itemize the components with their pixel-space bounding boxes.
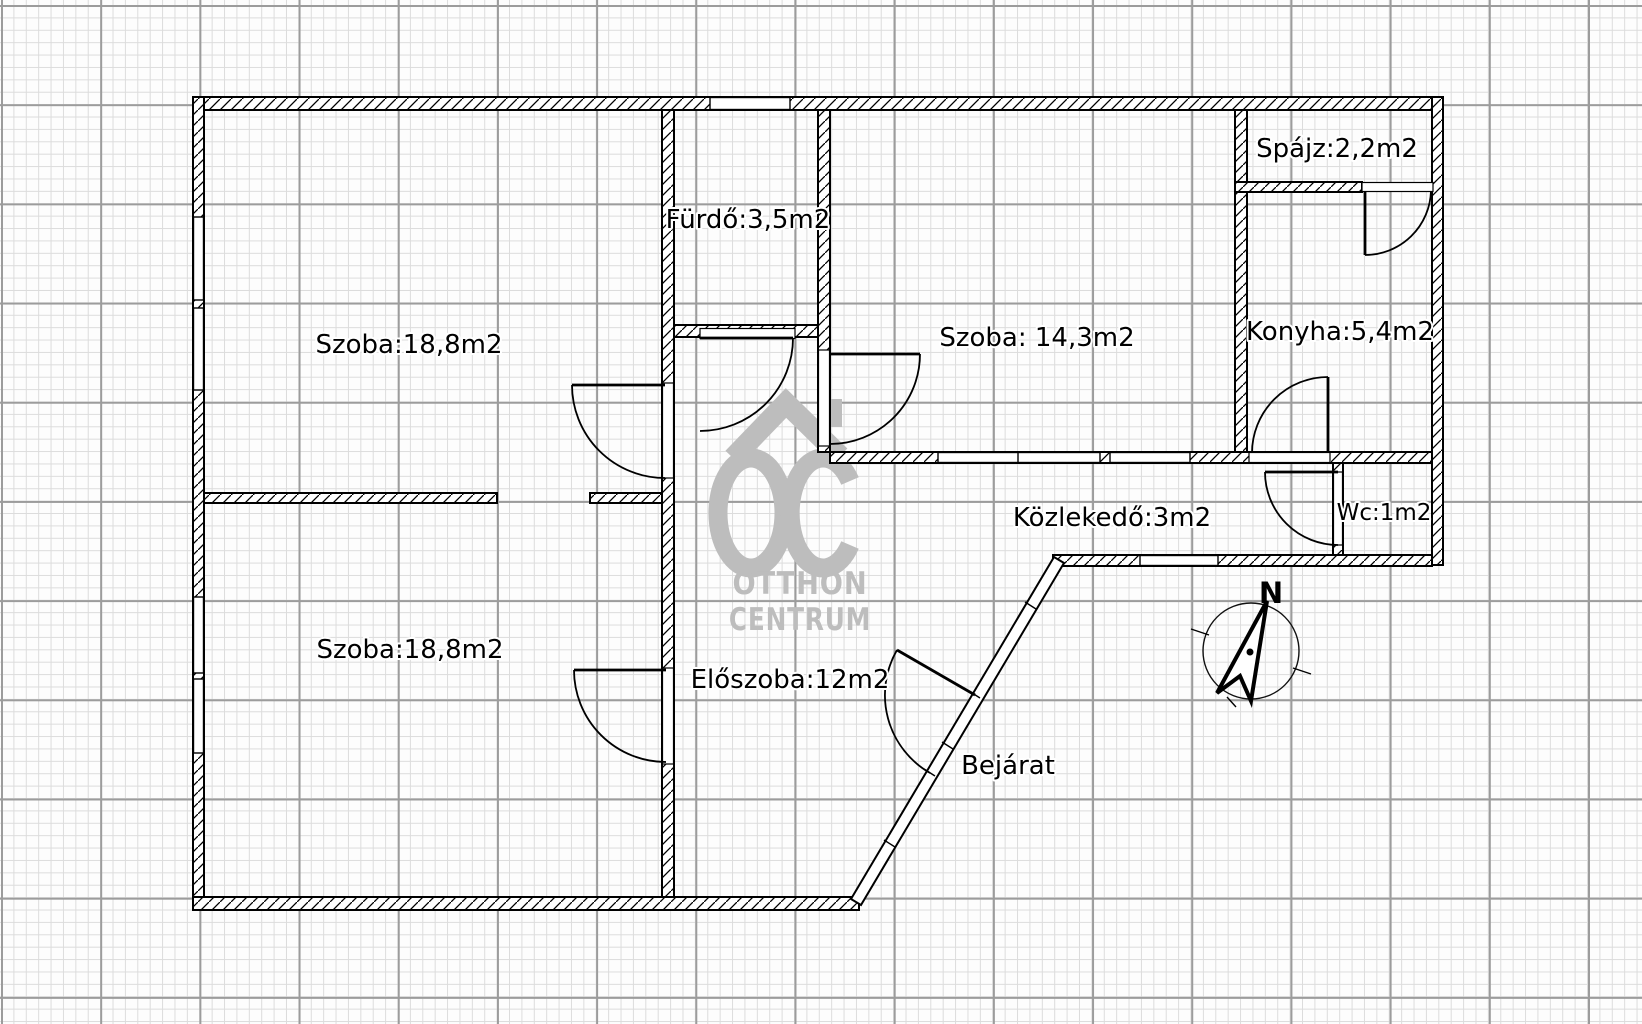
wall-hallway-bottom — [1053, 555, 1432, 566]
room-label-furdo: Fürdő:3,5m2 — [666, 205, 831, 235]
door-swing-pantry — [1365, 191, 1431, 255]
room-label-eloszoba: Előszoba:12m2 — [691, 665, 890, 695]
entrance-label: Bejárat — [961, 751, 1055, 781]
window-bathroom-top — [710, 98, 790, 110]
floorplan-canvas: OTTHON CENTRUM — [0, 0, 1642, 1024]
room-label-konyha: Konyha:5,4m2 — [1246, 317, 1434, 347]
window-room-bottom-left-b — [194, 679, 204, 753]
opening-room-middle — [819, 350, 830, 446]
opening-room-bottom-left — [663, 668, 674, 764]
opening-room-top-left — [663, 383, 674, 478]
window-room-top-left-a — [194, 217, 204, 300]
compass-tick-right — [1293, 668, 1311, 674]
compass-center-dot — [1247, 649, 1254, 656]
room-label-szoba-middle: Szoba: 14,3m2 — [939, 323, 1134, 353]
door-swing-room-top-left — [572, 385, 665, 478]
window-room-top-left-b — [194, 308, 204, 390]
door-leaf-entrance — [897, 650, 975, 695]
wall-rooms-divider-right — [590, 493, 662, 503]
wall-outer-top — [193, 97, 1443, 110]
watermark-oc-logo: OTTHON CENTRUM — [718, 399, 871, 638]
compass-north-label: N — [1259, 576, 1283, 610]
room-label-spajz: Spájz:2,2m2 — [1256, 134, 1418, 164]
room-label-kozlekedo: Közlekedő:3m2 — [1013, 503, 1211, 533]
window-room-middle-hallway-a — [938, 453, 1100, 463]
door-swing-entrance — [885, 650, 930, 773]
watermark-letter-c-icon — [790, 458, 850, 568]
opening-pantry — [1362, 183, 1433, 192]
wall-entrance-diagonal — [851, 557, 1064, 905]
watermark-line2: CENTRUM — [729, 601, 871, 637]
watermark-line1: OTTHON — [732, 565, 867, 601]
watermark-letter-o-icon — [718, 458, 784, 568]
door-swing-kitchen — [1252, 377, 1328, 453]
door-swing-room-middle — [830, 354, 920, 444]
wall-kitchen-left — [1235, 110, 1247, 452]
door-swing-wc — [1265, 472, 1338, 545]
wall-pantry-bottom — [1235, 182, 1362, 192]
room-label-wc: Wc:1m2 — [1337, 500, 1432, 526]
door-swing-room-bottom-left — [574, 670, 666, 762]
compass: N — [1191, 576, 1311, 707]
window-room-middle-hallway-b — [1110, 453, 1190, 463]
opening-kitchen — [1249, 453, 1330, 463]
north-arrow-icon — [1217, 601, 1267, 701]
compass-tick-bottom — [1227, 697, 1236, 707]
window-room-bottom-left-a — [194, 597, 204, 673]
wall-rooms-divider-left — [204, 493, 497, 503]
window-hallway-bottom — [1140, 556, 1218, 566]
wall-outer-bottom — [193, 897, 859, 910]
diagonal-wall-body — [851, 557, 1064, 905]
room-label-szoba-top-left: Szoba:18,8m2 — [315, 330, 502, 360]
room-label-szoba-bottom-left: Szoba:18,8m2 — [316, 635, 503, 665]
floorplan-drawing: OTTHON CENTRUM — [0, 0, 1642, 1024]
